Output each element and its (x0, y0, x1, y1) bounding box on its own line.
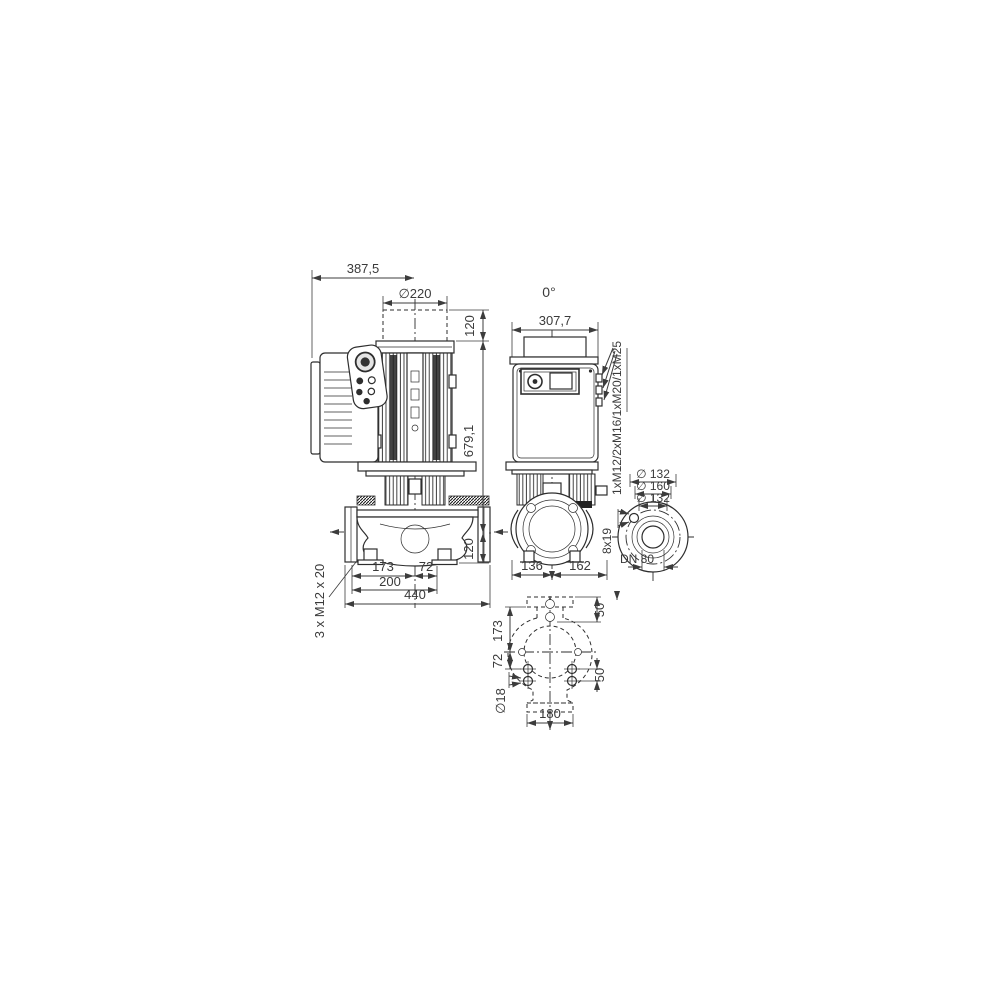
cable-gland-1 (596, 374, 602, 382)
dim-total-height-label: 679,1 (461, 425, 476, 458)
orientation-label: 0° (542, 284, 555, 300)
bolt-hole (630, 514, 639, 523)
coupling-guard-right (422, 476, 445, 505)
foot-thread-label: 3 x M12 x 20 (312, 564, 327, 638)
shaft-block (409, 479, 421, 494)
electronics-side-plate (311, 362, 320, 454)
cable-gland-2 (596, 386, 602, 394)
pump-foot-right (438, 549, 451, 561)
cable-gland-label: 1xM12/2xM16/1xM20/1xM25 (610, 341, 624, 495)
display-panel (521, 369, 579, 394)
coupling-guard-left (385, 476, 408, 505)
clamp-left (357, 496, 375, 505)
plan-view: 173 72 ∅18 50 50 (490, 596, 607, 730)
dim-plan-right-top: 50 (557, 597, 607, 622)
flange-bolt (527, 504, 536, 513)
fan-cover-side (524, 337, 586, 357)
bolt-hole-label: 8x19 (600, 528, 614, 554)
shaft-block-side (543, 483, 561, 494)
drawing-page: 387,5 ∅220 120 679,1 120 (0, 0, 1000, 1000)
dim-plan-width-label: 180 (539, 706, 561, 721)
module-top-plate (510, 357, 598, 364)
motor-flange-side (506, 462, 598, 470)
dim-clearance-height-label: 120 (462, 315, 477, 337)
dim-foot-span-label: 200 (379, 574, 401, 589)
dim-plan-right-top-label: 50 (592, 603, 607, 617)
dim-axis-left-label: 173 (372, 559, 394, 574)
dim-axis-right-label: 72 (419, 559, 433, 574)
dim-overall-width-label: 387,5 (347, 261, 380, 276)
plan-hole-dia-label: ∅18 (493, 688, 508, 714)
cable-gland-3 (596, 398, 602, 406)
pump-dimensional-drawing: 387,5 ∅220 120 679,1 120 (0, 0, 1000, 1000)
dim-clearance-height: 120 (449, 310, 489, 341)
foot-thread-callout: 3 x M12 x 20 (312, 562, 356, 638)
dim-port-to-base-label: 120 (461, 538, 476, 560)
dim-plan-right-bottom-label: 50 (592, 668, 607, 682)
dim-plan-axis-to-holes-label: 72 (490, 654, 505, 668)
pump-pipe (357, 510, 478, 517)
dim-plan-flange-to-axis: 173 (490, 607, 526, 652)
dim-side-bottom-right-label: 162 (569, 558, 591, 573)
motor-flange (358, 462, 476, 471)
dim-overall-length-label: 440 (404, 587, 426, 602)
dim-plan-flange-to-axis-label: 173 (490, 620, 505, 642)
display-window (550, 373, 572, 389)
front-view: 387,5 ∅220 120 679,1 120 (311, 261, 508, 638)
dim-plan-right-bottom: 50 (578, 658, 607, 692)
nominal-dia-label: DN 80 (620, 552, 654, 566)
dim-plan-axis-to-holes: 72 (490, 652, 521, 669)
dim-side-bottom-left-label: 136 (521, 558, 543, 573)
dim-flange-face-label: ∅ 132 (636, 491, 670, 505)
dim-overall-length: 440 (345, 565, 490, 608)
plan-hole-dia-callout: ∅18 (493, 672, 521, 714)
dim-side-width-label: 307,7 (539, 313, 572, 328)
dim-clearance-dia-label: ∅220 (398, 286, 431, 301)
